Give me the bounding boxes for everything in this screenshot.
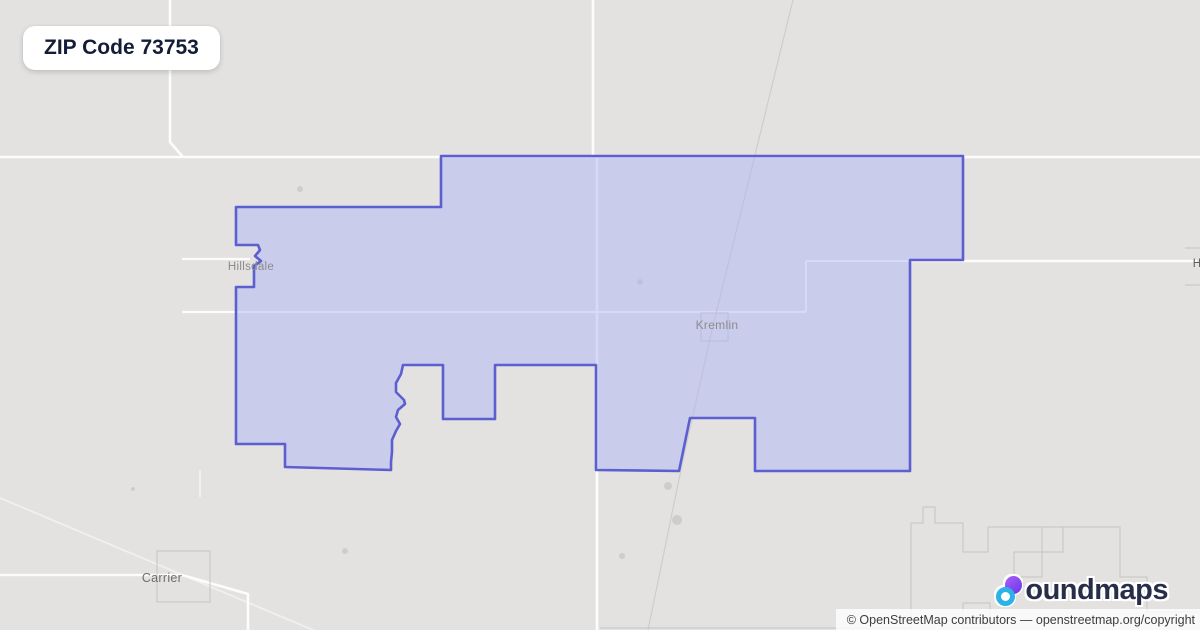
vegetation-blob-5 [297, 186, 303, 192]
map-canvas[interactable] [0, 0, 1200, 630]
boundmaps-drop-icon [996, 576, 1024, 606]
vegetation-blob-6 [131, 487, 135, 491]
attribution-text[interactable]: © OpenStreetMap contributors — openstree… [847, 613, 1195, 627]
vegetation-blob-2 [619, 553, 625, 559]
logo-ring-shape [996, 587, 1015, 606]
logo-wordmark: oundmaps [1025, 574, 1168, 607]
zip-title-pill: ZIP Code 73753 [23, 26, 220, 70]
vegetation-blob-1 [672, 515, 682, 525]
map-page: HillsdaleKremlinCarrierH ZIP Code 73753 … [0, 0, 1200, 630]
boundmaps-logo[interactable]: oundmaps [996, 574, 1168, 607]
vegetation-blob-0 [664, 482, 672, 490]
vegetation-blob-4 [342, 548, 348, 554]
page-title: ZIP Code 73753 [44, 36, 199, 59]
attribution-bar[interactable]: © OpenStreetMap contributors — openstree… [836, 609, 1200, 630]
